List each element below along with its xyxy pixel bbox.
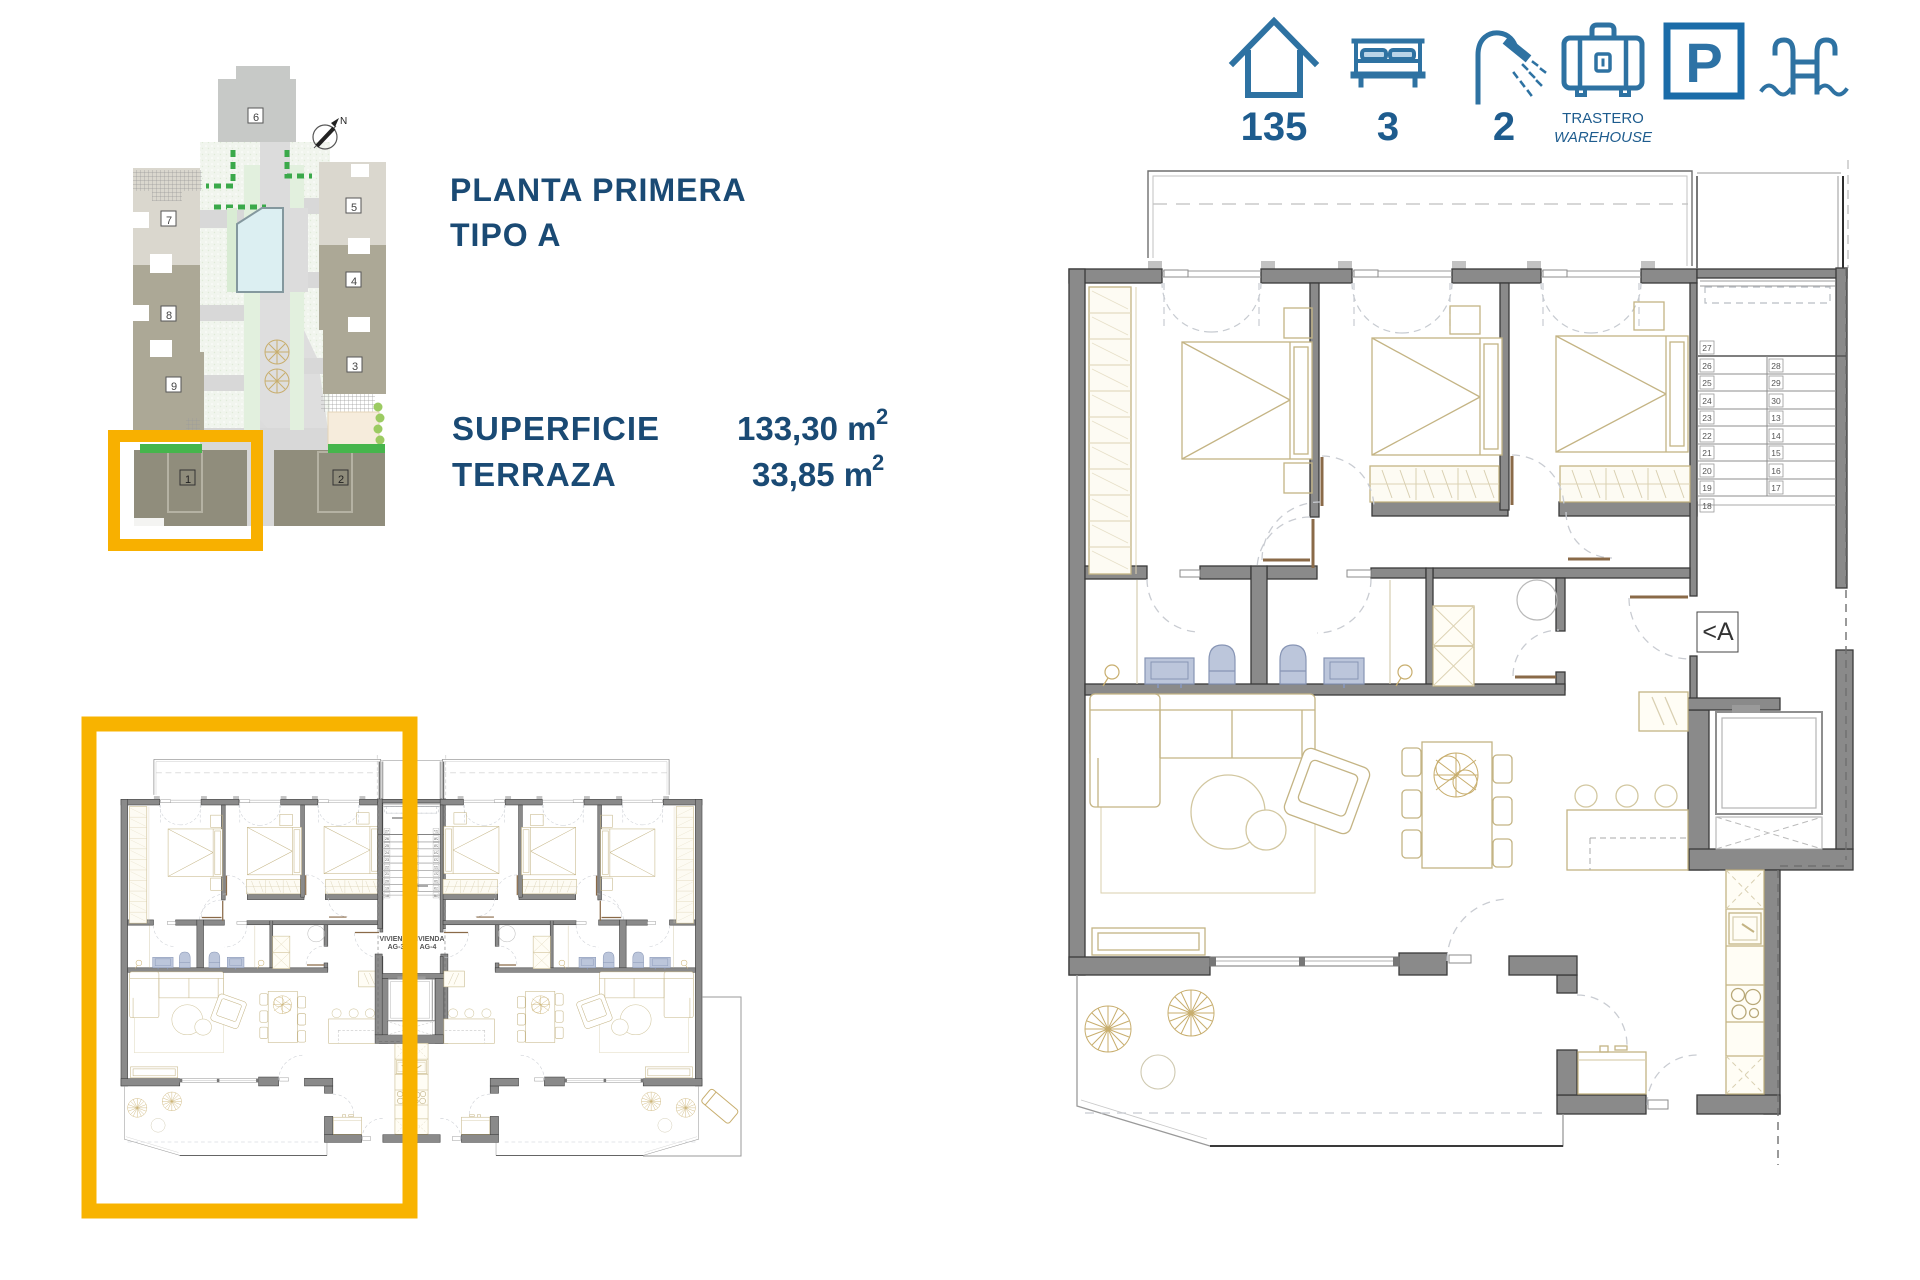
svg-text:1: 1 xyxy=(185,474,191,486)
svg-text:WAREHOUSE: WAREHOUSE xyxy=(1554,129,1653,146)
svg-text:8: 8 xyxy=(166,310,172,322)
svg-text:7: 7 xyxy=(166,215,172,227)
svg-text:135: 135 xyxy=(1241,105,1308,149)
svg-text:TERRAZA: TERRAZA xyxy=(452,456,617,493)
svg-text:N: N xyxy=(340,116,347,127)
svg-text:PLANTA PRIMERA: PLANTA PRIMERA xyxy=(450,172,747,208)
svg-text:5: 5 xyxy=(351,202,357,214)
svg-text:SUPERFICIE: SUPERFICIE xyxy=(452,410,660,447)
svg-text:3: 3 xyxy=(1377,105,1399,149)
svg-text:2: 2 xyxy=(338,474,344,486)
svg-text:P: P xyxy=(1685,31,1722,94)
svg-text:4: 4 xyxy=(351,276,357,288)
svg-text:2: 2 xyxy=(876,404,888,429)
svg-text:AG-3: AG-3 xyxy=(388,944,405,951)
svg-text:2: 2 xyxy=(1493,105,1515,149)
svg-text:TRASTERO: TRASTERO xyxy=(1562,110,1644,127)
svg-text:6: 6 xyxy=(253,112,259,124)
svg-text:AG-4: AG-4 xyxy=(420,944,437,951)
svg-text:2: 2 xyxy=(872,450,884,475)
svg-text:133,30 m: 133,30 m xyxy=(737,410,876,447)
svg-text:<A: <A xyxy=(1702,618,1734,646)
svg-text:TIPO A: TIPO A xyxy=(450,217,561,253)
svg-text:9: 9 xyxy=(171,381,177,393)
svg-text:3: 3 xyxy=(352,361,358,373)
svg-text:33,85 m: 33,85 m xyxy=(752,456,873,493)
